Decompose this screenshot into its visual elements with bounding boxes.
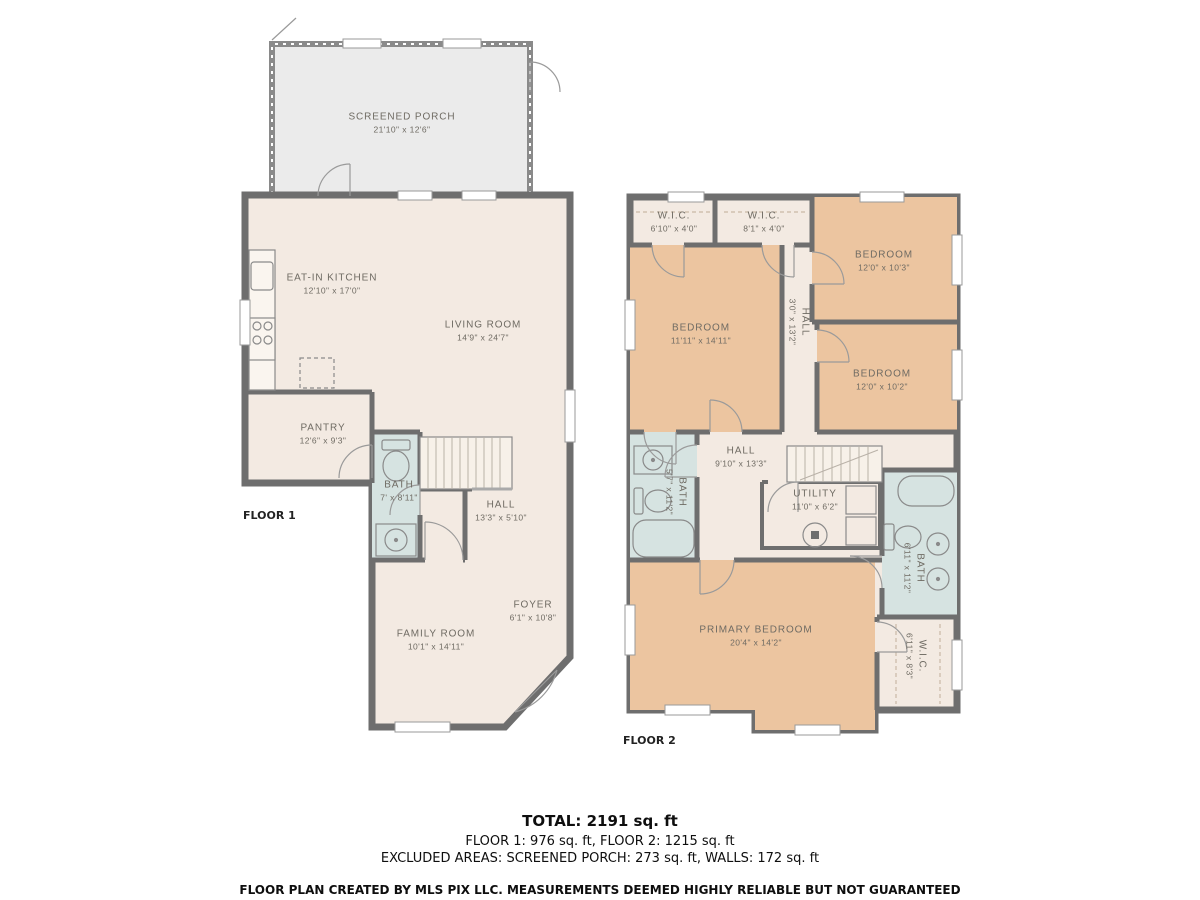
floor-plan-page: { "colors": { "wall": "#6e6e6e", "room_b…: [0, 0, 1200, 900]
stairs-floor2: [787, 446, 882, 482]
stairs-floor1: [420, 437, 512, 489]
window-mark: [443, 39, 481, 48]
bedroom-left-floor: [630, 245, 782, 432]
summary-block: TOTAL: 2191 sq. ft FLOOR 1: 976 sq. ft, …: [0, 812, 1200, 897]
bath-right-floor: [882, 470, 957, 617]
floorplan-canvas: [0, 0, 1200, 900]
screened-porch-structure: [272, 18, 560, 196]
bedroom-tr-floor: [812, 197, 957, 322]
floor1-tag: FLOOR 1: [243, 509, 296, 522]
excluded-areas-text: EXCLUDED AREAS: SCREENED PORCH: 273 sq. …: [0, 850, 1200, 867]
door-leaf: [272, 18, 296, 40]
bath-left-floor: [630, 432, 697, 560]
disclaimer-text: FLOOR PLAN CREATED BY MLS PIX LLC. MEASU…: [0, 883, 1200, 897]
window-mark: [343, 39, 381, 48]
floor1-plan: [240, 18, 575, 732]
total-area-text: TOTAL: 2191 sq. ft: [0, 812, 1200, 830]
floor2-plan: [625, 192, 962, 735]
floor-areas-text: FLOOR 1: 976 sq. ft, FLOOR 2: 1215 sq. f…: [0, 833, 1200, 850]
floor2-tag: FLOOR 2: [623, 734, 676, 747]
door-arc: [530, 62, 560, 92]
